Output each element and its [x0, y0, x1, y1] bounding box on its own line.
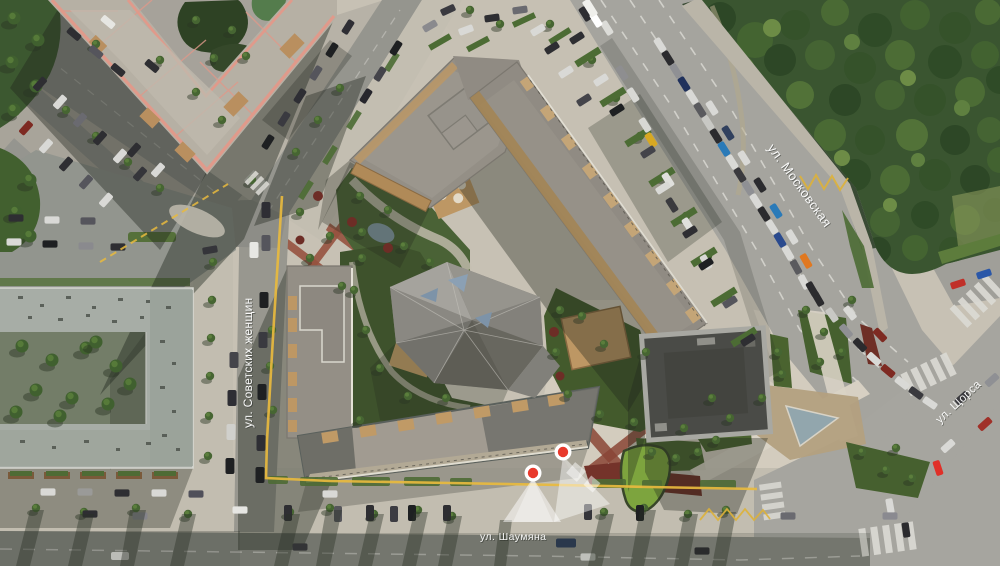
svg-text:ул. Шаумяна: ул. Шаумяна [480, 531, 546, 543]
svg-text:ул. Советских женщин: ул. Советских женщин [241, 298, 255, 428]
